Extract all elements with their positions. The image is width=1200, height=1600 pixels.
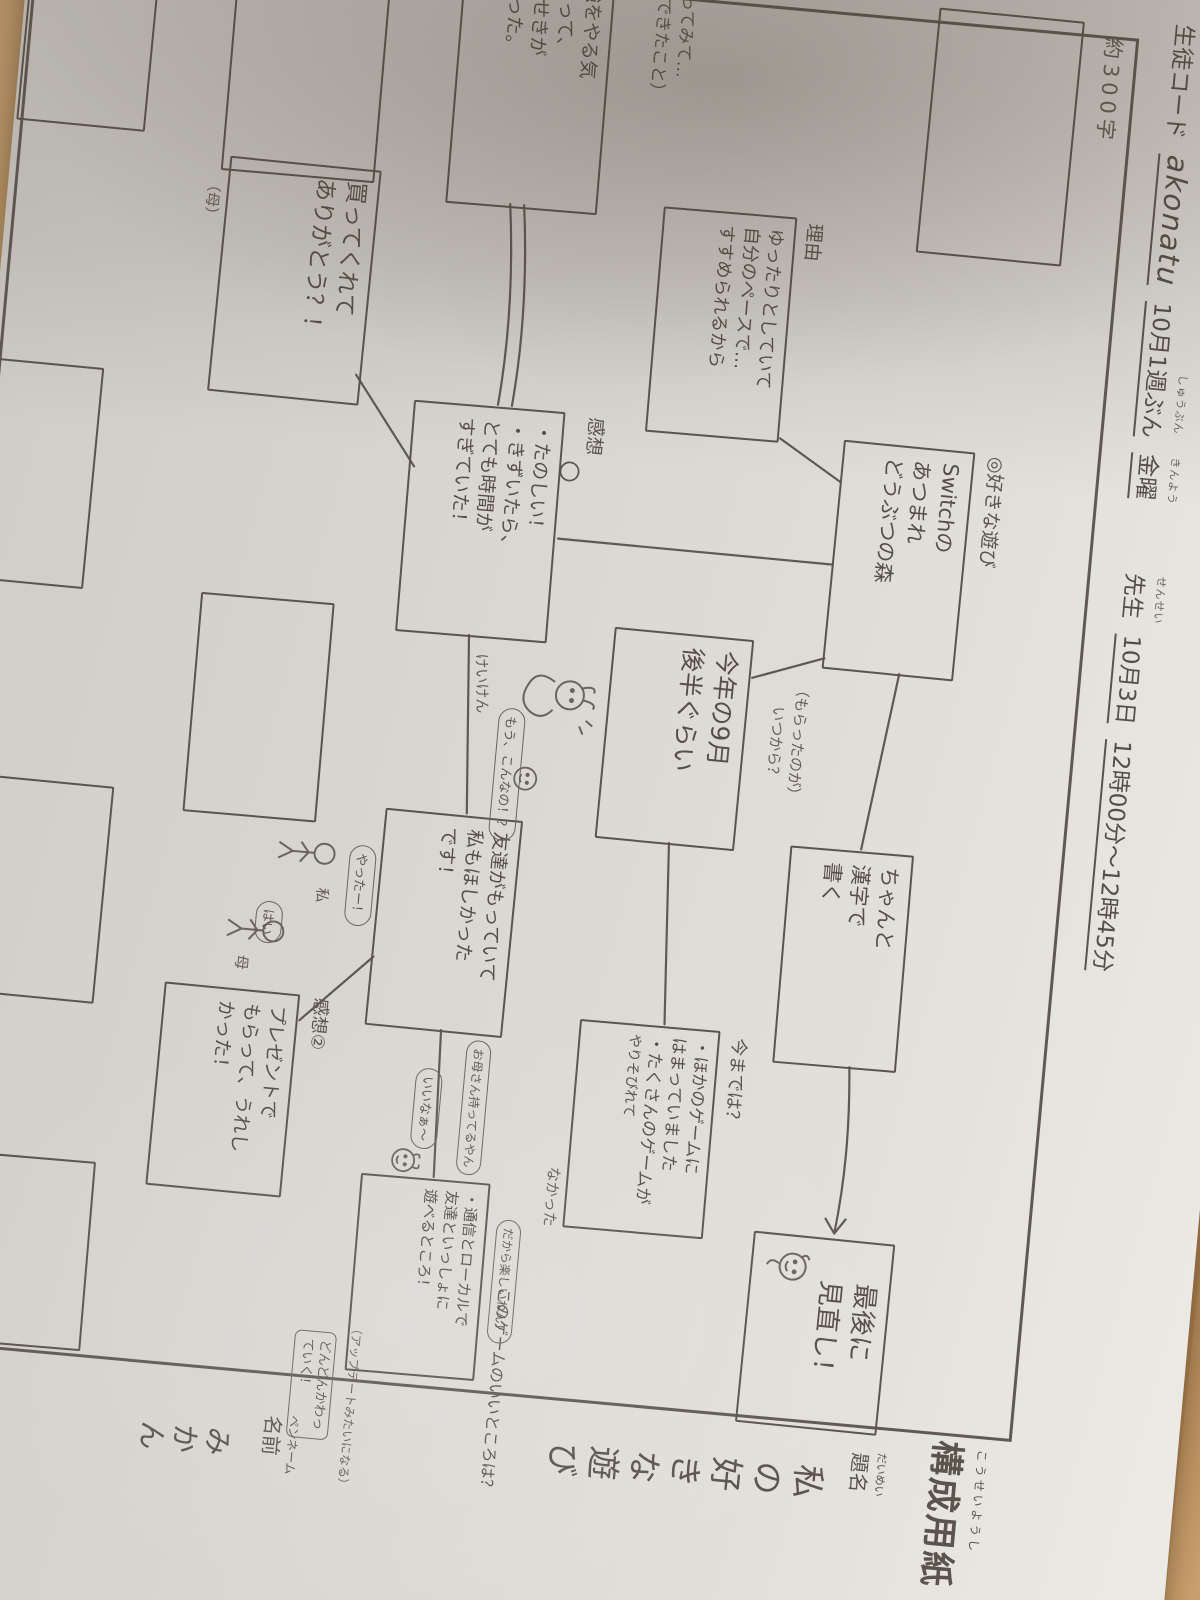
label-reason: 理由 <box>799 223 829 263</box>
box-reason: ゆったりとしていて 自分のペースで… すすめられるから <box>645 206 797 442</box>
label-impression1: 感想 <box>581 417 611 457</box>
empty-box-bottom-3 <box>0 774 114 1004</box>
note-until-now: なかった <box>539 1166 565 1228</box>
label-until-now: 今までは？ <box>719 1037 753 1129</box>
empty-box-bottom-2 <box>0 357 104 589</box>
bubble-okasan: お母さん持ってるやん <box>455 1039 492 1176</box>
student-code-value: akonatu <box>1146 153 1195 288</box>
box-favorite-game: Switchの あつまれ どうぶつの森 <box>822 440 976 682</box>
box-impression2: プレゼントで もらって、うれし かった！ <box>145 981 300 1197</box>
header: せいと生徒コード akonatu しゅうぶん10月1週ぶん きんよう金曜 せんせ… <box>1040 23 1200 1460</box>
box-impression1: ・たのしい！ ・きずいたら、 とても時間が すぎていた！ <box>395 400 565 644</box>
connector-favorite-kanji <box>861 672 899 851</box>
bubble-iina: いいなぁ～ <box>409 1067 443 1150</box>
note-thanks-mom: （母） <box>200 176 225 223</box>
empty-box-left-row <box>221 0 395 183</box>
weekday-furigana: きんよう <box>1166 457 1181 506</box>
week-value: しゅうぶん10月1週ぶん <box>1133 301 1182 440</box>
box-thanks: 買ってくれて ありがとう？！ <box>207 156 382 406</box>
worksheet-content: せいと生徒コード akonatu しゅうぶん10月1週ぶん きんよう金曜 せんせ… <box>0 0 1200 1600</box>
note-keiken: けいけん <box>471 653 493 713</box>
sheet-title: 構成用紙 <box>912 1439 976 1591</box>
box-friend: 友達がもっていて 私もほしかった です！ <box>364 808 523 1038</box>
date-value: 10月3日 <box>1107 634 1152 727</box>
name-label: 名前 <box>257 1414 290 1456</box>
connector-tried-impression1-a <box>506 205 533 406</box>
photo-of-worksheet: せいと生徒コード akonatu しゅうぶん10月1週ぶん きんよう金曜 せんせ… <box>0 0 1200 1600</box>
time-value: 12時00分～12時45分 <box>1084 739 1142 973</box>
note-update: （アップデートみたいになる） <box>334 1322 366 1491</box>
box-until-now: ・ほかのゲームに はまっていました ・たくさんのゲームが やりそびれて <box>562 1019 720 1239</box>
label-favorite: ◎好きな遊び <box>974 456 1011 570</box>
empty-box-bottom-4 <box>0 1151 96 1351</box>
bubble-hai: はい <box>253 900 284 944</box>
connector-tried-impression1-b <box>492 204 519 405</box>
box-review: 最後に 見直し！ <box>735 1231 895 1436</box>
paper-sheet: せいと生徒コード akonatu しゅうぶん10月1週ぶん きんよう金曜 せんせ… <box>0 0 1200 1600</box>
empty-box-top-left <box>916 8 1085 267</box>
box-when: 今年の9月 後半ぐらい <box>595 627 755 851</box>
label-mom: 母 <box>231 954 253 971</box>
title-label: 題名 <box>844 1452 877 1494</box>
bubble-kawaru: どんどんかわっていく！ <box>286 1329 337 1440</box>
box-tried: 勉強をやる気 になって、 せいせきが 上がった。 <box>445 0 618 215</box>
label-me: 私 <box>311 887 333 904</box>
empty-box-bottom-1 <box>16 0 165 132</box>
teacher-furigana: せんせい <box>1152 576 1167 625</box>
weekday-value: きんよう金曜 <box>1127 452 1168 501</box>
box-kanji-reminder: ちゃんと 漢字で 書く <box>772 845 914 1073</box>
label-impression2: 感想② <box>305 997 336 1051</box>
note-when-1: （もらったのが） <box>782 682 814 803</box>
arrow-kanji-review <box>824 1066 859 1234</box>
student-code-label: せいと生徒コード <box>1160 23 1200 141</box>
bubble-tanoshii: だから楽しいねん！ <box>486 1219 522 1345</box>
bubble-yatta: やったー！ <box>343 844 377 927</box>
week-furigana: しゅうぶん <box>1172 374 1188 435</box>
connector-favorite-impression1 <box>558 539 833 565</box>
char-count-note: 約300字 <box>1090 37 1130 146</box>
name-value: みかん <box>82 1406 235 1461</box>
connector-reason-favorite <box>777 438 844 482</box>
box-good-points: ・通信とローカルで 友達といっしょに 遊べるところ！ <box>345 1173 491 1381</box>
teacher-label: せんせい先生 <box>1116 572 1154 621</box>
connector-when-untilnow <box>653 843 681 1024</box>
connector-favorite-when <box>752 652 824 684</box>
creature-face-doodle <box>384 1143 423 1180</box>
empty-box-middle-row <box>182 592 334 823</box>
